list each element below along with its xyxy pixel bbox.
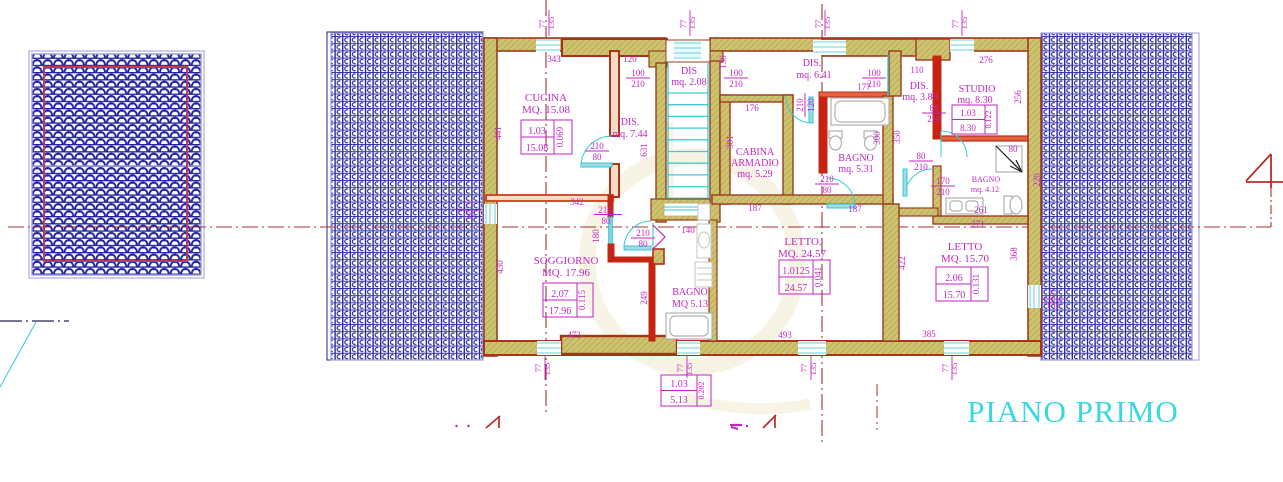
svg-text:135: 135 xyxy=(959,17,969,30)
svg-text:STUDIO: STUDIO xyxy=(959,84,996,95)
svg-text:2.07: 2.07 xyxy=(551,289,569,300)
svg-text:210: 210 xyxy=(867,79,881,89)
svg-text:276: 276 xyxy=(979,55,993,65)
svg-text:1.03: 1.03 xyxy=(670,379,688,390)
svg-text:368: 368 xyxy=(1009,247,1019,261)
svg-text:0.041: 0.041 xyxy=(813,267,823,287)
svg-text:300: 300 xyxy=(872,131,882,145)
svg-text:0.122: 0.122 xyxy=(984,111,993,129)
svg-text:187: 187 xyxy=(848,204,862,214)
svg-text:135: 135 xyxy=(462,211,476,221)
svg-text:135: 135 xyxy=(949,363,959,376)
svg-text:493: 493 xyxy=(778,330,792,340)
svg-text:110: 110 xyxy=(910,65,924,75)
svg-text:210: 210 xyxy=(795,98,805,112)
svg-text:mq. 5.31: mq. 5.31 xyxy=(838,164,873,175)
svg-text:DIS.: DIS. xyxy=(803,58,822,69)
svg-text:2.06: 2.06 xyxy=(945,273,963,284)
svg-text:LETTO: LETTO xyxy=(948,241,983,253)
svg-text:80: 80 xyxy=(917,151,927,161)
svg-text:473: 473 xyxy=(567,330,581,340)
svg-text:MQ. 15.70: MQ. 15.70 xyxy=(941,253,989,265)
svg-text:77: 77 xyxy=(1049,289,1059,299)
svg-text:SOGGIORNO: SOGGIORNO xyxy=(534,255,599,267)
svg-text:1.03: 1.03 xyxy=(528,126,546,137)
svg-text:210: 210 xyxy=(590,141,604,151)
svg-text:BAGNO: BAGNO xyxy=(672,287,708,298)
svg-text:385: 385 xyxy=(922,329,936,339)
svg-text:MQ. 24.57: MQ. 24.57 xyxy=(778,248,826,260)
svg-text:210: 210 xyxy=(820,174,834,184)
svg-text:mq. 8.30: mq. 8.30 xyxy=(957,95,992,106)
svg-text:100: 100 xyxy=(729,68,743,78)
svg-text:422: 422 xyxy=(897,256,907,270)
svg-text:120: 120 xyxy=(623,54,637,64)
svg-text:187: 187 xyxy=(748,203,762,213)
svg-text:135: 135 xyxy=(684,363,694,376)
svg-text:mq. 5.29: mq. 5.29 xyxy=(737,169,772,180)
svg-text:PIANO PRIMO: PIANO PRIMO xyxy=(967,394,1179,429)
svg-text:80: 80 xyxy=(930,103,940,113)
svg-text:80: 80 xyxy=(1009,144,1019,154)
svg-text:mq. 6.41: mq. 6.41 xyxy=(796,70,831,81)
svg-text:343: 343 xyxy=(547,54,561,64)
svg-text:135: 135 xyxy=(1046,300,1060,310)
svg-text:1.03: 1.03 xyxy=(960,108,976,118)
svg-text:MQ 5.13: MQ 5.13 xyxy=(672,299,708,310)
svg-text:210: 210 xyxy=(636,228,650,238)
svg-text:210: 210 xyxy=(631,79,645,89)
svg-text:DIS.: DIS. xyxy=(621,117,640,128)
svg-text:120: 120 xyxy=(806,98,816,112)
svg-text:ARMADIO: ARMADIO xyxy=(731,158,779,169)
svg-text:77: 77 xyxy=(465,200,475,210)
svg-text:220: 220 xyxy=(1032,173,1042,187)
svg-text:135: 135 xyxy=(546,17,556,30)
svg-text:5.13: 5.13 xyxy=(670,395,688,406)
svg-text:210: 210 xyxy=(729,79,743,89)
svg-text:15.08: 15.08 xyxy=(526,143,549,154)
svg-text:8.30: 8.30 xyxy=(960,123,976,133)
svg-text:441: 441 xyxy=(493,126,503,140)
svg-text:mq. 7.44: mq. 7.44 xyxy=(612,129,647,140)
svg-text:0.202: 0.202 xyxy=(697,382,706,400)
svg-text:17.96: 17.96 xyxy=(549,306,572,317)
svg-text:mq. 4.12: mq. 4.12 xyxy=(971,185,999,194)
svg-text:CUCINA: CUCINA xyxy=(525,92,567,104)
svg-text:261: 261 xyxy=(974,205,988,215)
svg-text:DIS: DIS xyxy=(681,66,697,77)
svg-text:256: 256 xyxy=(1013,90,1023,104)
svg-text:342: 342 xyxy=(570,197,584,207)
svg-text:135: 135 xyxy=(822,17,832,30)
svg-text:135: 135 xyxy=(808,363,818,376)
svg-text:MQ. 17.96: MQ. 17.96 xyxy=(542,267,590,279)
svg-text:100: 100 xyxy=(867,68,881,78)
svg-text:0.069: 0.069 xyxy=(555,126,565,147)
svg-text:135: 135 xyxy=(687,17,697,30)
svg-text:176: 176 xyxy=(745,103,759,113)
svg-text:BAGNO: BAGNO xyxy=(838,153,874,164)
svg-text:249: 249 xyxy=(639,291,649,305)
svg-text:135: 135 xyxy=(542,363,552,376)
svg-text:350: 350 xyxy=(892,130,902,144)
svg-text:210: 210 xyxy=(598,205,612,215)
svg-text:1.0125: 1.0125 xyxy=(782,266,810,277)
svg-text:MQ. 15.08: MQ. 15.08 xyxy=(522,104,570,116)
svg-text:0.131: 0.131 xyxy=(971,274,981,294)
svg-text:24.57: 24.57 xyxy=(785,283,808,294)
svg-text:mq. 2.08: mq. 2.08 xyxy=(671,77,706,88)
svg-text:180: 180 xyxy=(591,229,601,243)
svg-text:210: 210 xyxy=(936,187,950,197)
svg-text:LETTO.: LETTO. xyxy=(784,236,822,248)
svg-text:170: 170 xyxy=(936,176,950,186)
svg-text:CABINA: CABINA xyxy=(736,147,775,158)
svg-text:140: 140 xyxy=(681,225,695,235)
svg-text:BAGNO: BAGNO xyxy=(972,175,1001,184)
svg-text:210: 210 xyxy=(914,162,928,172)
svg-text:80: 80 xyxy=(823,185,833,195)
svg-text:210: 210 xyxy=(927,114,941,124)
svg-text:15.70: 15.70 xyxy=(943,290,966,301)
svg-text:mq. 3.89: mq. 3.89 xyxy=(902,92,937,103)
svg-text:80: 80 xyxy=(593,152,603,162)
svg-text:80: 80 xyxy=(639,239,649,249)
svg-text:100: 100 xyxy=(631,68,645,78)
svg-text:631: 631 xyxy=(639,143,649,157)
svg-text:301: 301 xyxy=(725,135,735,149)
svg-text:0.115: 0.115 xyxy=(577,290,587,310)
svg-text:271: 271 xyxy=(971,219,985,229)
svg-text:DIS.: DIS. xyxy=(910,81,929,92)
svg-text:80: 80 xyxy=(602,216,612,226)
svg-text:130: 130 xyxy=(718,55,728,69)
svg-text:430: 430 xyxy=(495,260,505,274)
